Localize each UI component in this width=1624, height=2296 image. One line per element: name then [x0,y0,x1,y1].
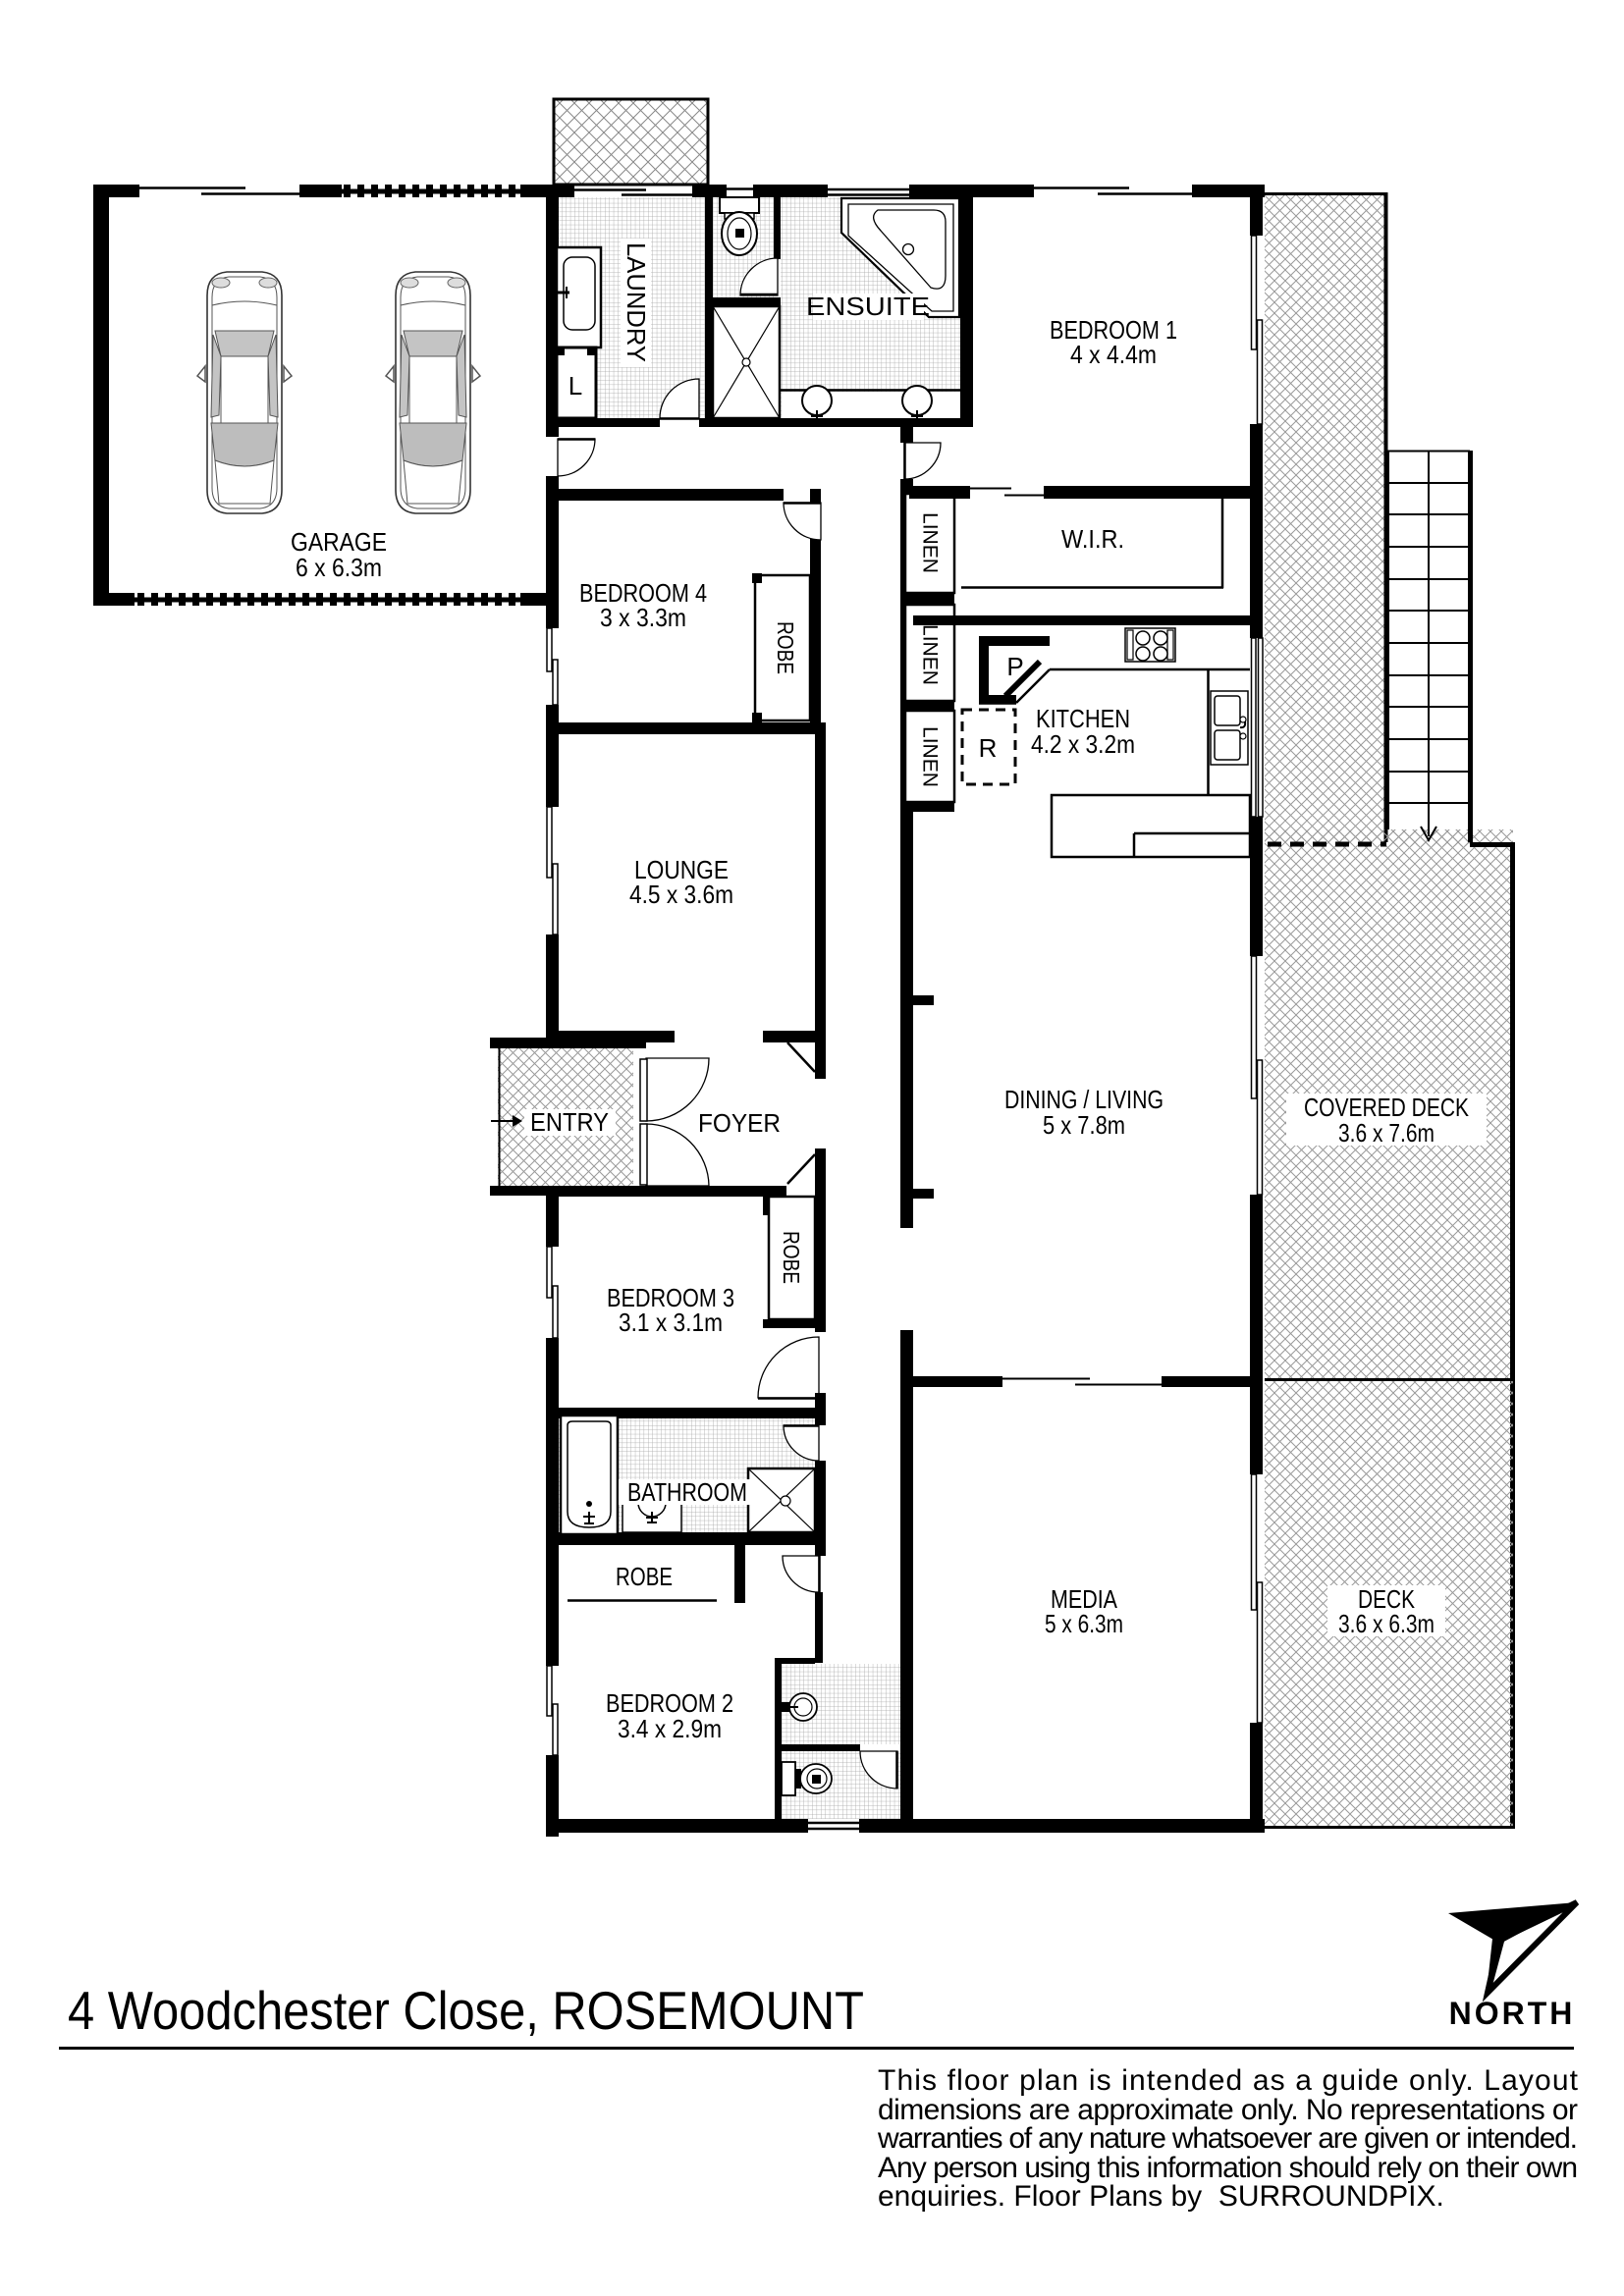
svg-text:W.I.R.: W.I.R. [1061,524,1124,554]
svg-text:L: L [568,371,582,400]
svg-text:NORTH: NORTH [1449,1996,1576,2031]
svg-text:R: R [979,733,998,763]
svg-text:3.6 x 6.3m: 3.6 x 6.3m [1338,1609,1435,1638]
svg-text:3.4 x 2.9m: 3.4 x 2.9m [618,1714,722,1743]
svg-text:4 x 4.4m: 4 x 4.4m [1070,340,1157,369]
svg-text:6 x 6.3m: 6 x 6.3m [296,553,382,582]
svg-text:ROBE: ROBE [616,1562,673,1591]
svg-text:ENSUITE: ENSUITE [806,292,930,321]
svg-text:3 x 3.3m: 3 x 3.3m [600,603,686,632]
svg-text:5 x 7.8m: 5 x 7.8m [1043,1110,1125,1140]
svg-text:4.2 x 3.2m: 4.2 x 3.2m [1031,729,1135,759]
svg-text:5 x 6.3m: 5 x 6.3m [1045,1609,1123,1638]
svg-text:enquiries. Floor Plans by SUR: enquiries. Floor Plans by SURROUNDPIX. [878,2180,1444,2213]
svg-text:warranties of any nature whats: warranties of any nature whatsoever are … [877,2122,1578,2155]
svg-text:P: P [1006,652,1023,681]
svg-text:LINEN: LINEN [919,726,942,787]
svg-text:ROBE: ROBE [773,621,798,674]
svg-text:LINEN: LINEN [919,624,942,685]
svg-text:4 Woodchester Close, ROSEMOUNT: 4 Woodchester Close, ROSEMOUNT [68,1980,864,2041]
svg-text:4.5 x 3.6m: 4.5 x 3.6m [629,880,733,909]
svg-text:3.6 x 7.6m: 3.6 x 7.6m [1338,1118,1435,1148]
svg-text:BATHROOM: BATHROOM [627,1477,747,1507]
svg-text:LINEN: LINEN [919,512,942,573]
svg-text:FOYER: FOYER [698,1108,781,1138]
svg-text:LAUNDRY: LAUNDRY [622,242,651,362]
svg-text:3.1 x 3.1m: 3.1 x 3.1m [619,1308,723,1337]
svg-text:ENTRY: ENTRY [530,1107,609,1137]
svg-text:ROBE: ROBE [779,1231,804,1284]
svg-text:This floor plan is intended as: This floor plan is intended as a guide o… [878,2064,1579,2097]
